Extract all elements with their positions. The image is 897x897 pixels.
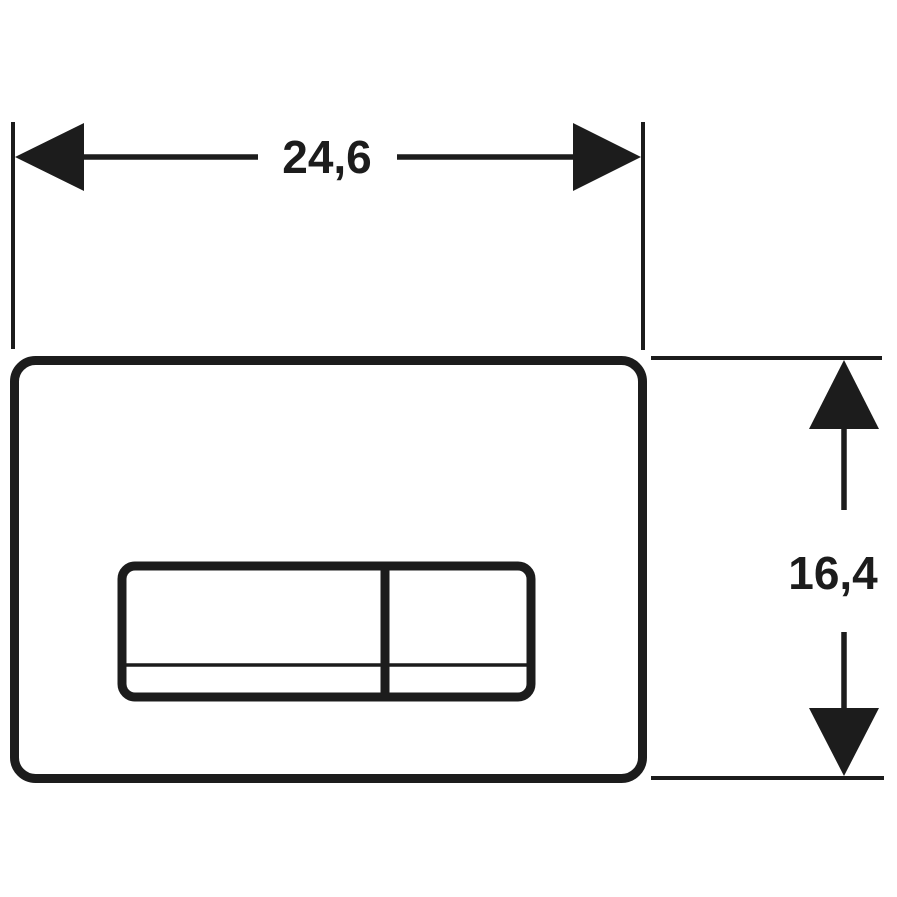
dimension-drawing: 24,6 16,4 — [0, 0, 897, 897]
height-arrowhead-up — [809, 360, 879, 429]
width-arrowhead-left — [15, 123, 84, 191]
dimension-drawing-canvas: 24,6 16,4 — [0, 0, 897, 897]
width-arrowhead-right — [573, 123, 641, 191]
width-dimension-label: 24,6 — [282, 131, 372, 183]
height-dimension-label: 16,4 — [788, 547, 878, 599]
drawing-root: 24,6 16,4 — [13, 122, 884, 779]
flush-buttons-panel — [122, 566, 531, 697]
height-arrowhead-down — [809, 708, 879, 776]
